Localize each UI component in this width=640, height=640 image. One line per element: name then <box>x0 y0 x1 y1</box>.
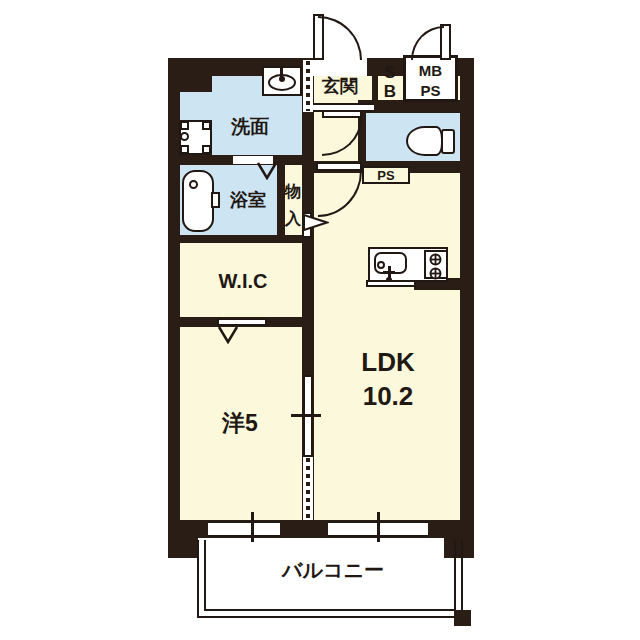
kitchen-faucet-bar <box>383 271 395 274</box>
ldk-name: LDK <box>361 345 414 379</box>
folding-door-icon <box>256 162 278 180</box>
washer-pan-corner <box>180 121 189 130</box>
storage-char1: 物 <box>285 178 301 205</box>
vanity-faucet-dot <box>279 76 285 82</box>
bathtub-drain <box>189 180 198 189</box>
entrance-door-swing-arc <box>318 16 362 60</box>
wall-wic-top <box>174 235 314 243</box>
wall-right <box>460 58 474 526</box>
toilet-tank <box>441 129 455 154</box>
shoe-box-line1: S <box>384 63 395 82</box>
balcony-corner-post <box>454 610 471 626</box>
wall-block-bottom-left <box>168 520 198 558</box>
storage-door-swing-icon <box>303 214 329 231</box>
western-room-label: 洋5 <box>200 408 280 438</box>
washer-pan-drain <box>180 132 189 141</box>
shoe-box-line2: B <box>384 82 396 101</box>
ldk-size: 10.2 <box>363 379 414 413</box>
window-sash-tick <box>251 512 254 542</box>
window-sash-tick <box>377 512 380 542</box>
pipe-space-line: PS <box>420 81 440 101</box>
window-icon <box>208 521 280 537</box>
ldk-label: LDK 10.2 <box>338 346 438 412</box>
kitchen-faucet-circle <box>377 261 385 269</box>
toilet-icon <box>406 126 443 156</box>
washer-pan-corner <box>180 145 189 154</box>
storage-char2: 入 <box>285 205 301 232</box>
floor-plan: 玄関 S B MB PS 洗面 浴室 物 入 PS W.I.C 洋5 LDK 1… <box>0 0 640 640</box>
washroom-label: 洗面 <box>205 114 295 140</box>
meter-box-door-swing-arc <box>411 26 444 60</box>
wic-door-panel <box>217 318 267 326</box>
storage-label: 物 入 <box>283 176 303 234</box>
meter-box-line: MB <box>419 61 442 81</box>
counter-front-edge <box>366 280 416 287</box>
folding-door-icon <box>217 326 239 344</box>
meter-pipe-label: MB PS <box>403 60 458 102</box>
ldk-door-icon <box>316 162 362 171</box>
genkan-label: 玄関 <box>308 74 372 98</box>
stove-burner-icon <box>429 267 442 280</box>
washer-pan-corner <box>202 145 211 154</box>
wic-label: W.I.C <box>195 268 291 294</box>
stove-burner-icon <box>429 253 442 266</box>
sliding-door-dashed-line <box>306 458 310 519</box>
balcony-label: バルコニー <box>233 558 433 582</box>
pipe-space-label: PS <box>362 166 410 184</box>
sliding-door-meeting-mark <box>291 414 321 417</box>
bathroom-label: 浴室 <box>210 188 286 212</box>
shoe-box-label: S B <box>378 62 402 102</box>
toilet-door-icon <box>322 110 362 118</box>
